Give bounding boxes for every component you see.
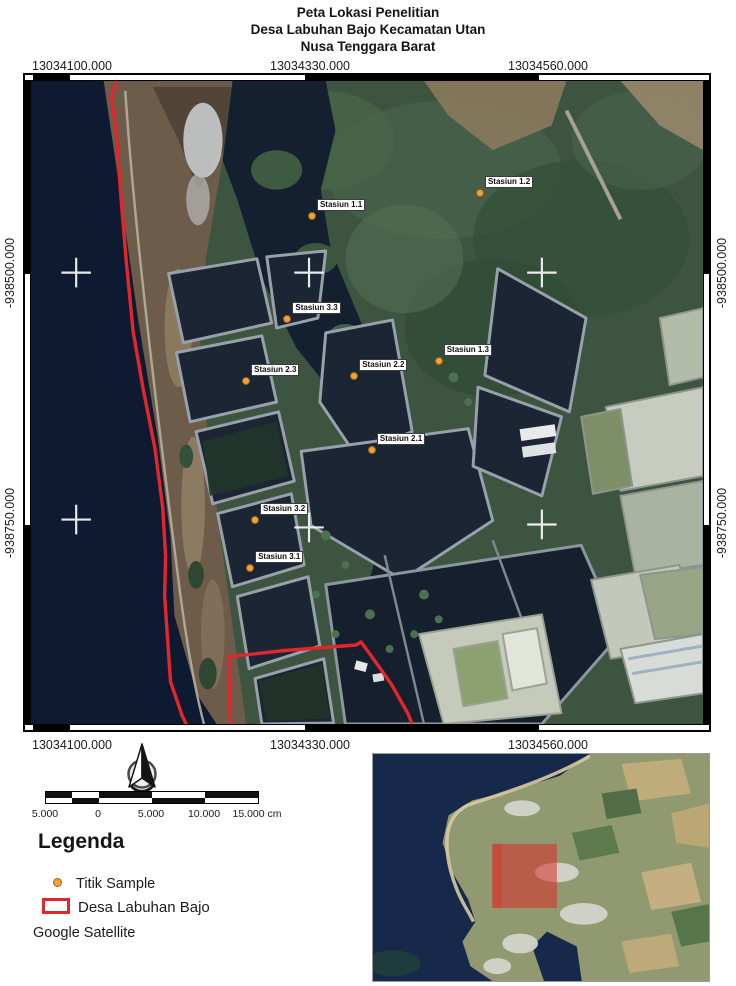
grid-x-label-top: 13034330.000 [270, 59, 350, 73]
station-label: Stasiun 1.1 [317, 199, 365, 211]
sample-point-icon [308, 212, 316, 220]
scale-bar: 5.00005.00010.00015.000 cm [45, 791, 257, 817]
title-line-2: Desa Labuhan Bajo Kecamatan Utan [0, 21, 736, 38]
sample-point-icon [476, 189, 484, 197]
station-label: Stasiun 2.2 [359, 359, 407, 371]
legend-item-desa-labuhan-bajo: Desa Labuhan Bajo [78, 899, 210, 916]
map-title: Peta Lokasi Penelitian Desa Labuhan Bajo… [0, 4, 736, 55]
map-neatline-right [703, 81, 710, 724]
legend-heading: Legenda [38, 830, 124, 854]
sample-point-icon [283, 315, 291, 323]
sample-point-icon [368, 446, 376, 454]
grid-y-label-left: -938500.000 [3, 238, 17, 308]
legend-item-google-satellite: Google Satellite [33, 925, 135, 941]
main-map-frame: Stasiun 1.1Stasiun 1.2Stasiun 1.3Stasiun… [23, 73, 711, 732]
scale-bar-tick-label: 5.000 [138, 808, 164, 820]
legend-sample-point-icon [53, 878, 62, 887]
grid-x-label-top: 13034560.000 [508, 59, 588, 73]
north-arrow-icon [118, 741, 166, 795]
sample-point-icon [242, 377, 250, 385]
inset-map [372, 753, 710, 982]
map-neatline-bottom [24, 724, 710, 731]
sample-point-icon [251, 516, 259, 524]
inset-map-art [373, 754, 709, 981]
grid-y-label-right: -938750.000 [715, 488, 729, 558]
station-label: Stasiun 1.2 [485, 176, 533, 188]
grid-x-label-bottom: 13034100.000 [32, 738, 112, 752]
grid-y-label-right: -938500.000 [715, 238, 729, 308]
station-label: Stasiun 3.2 [260, 503, 308, 515]
station-label: Stasiun 2.3 [251, 364, 299, 376]
grid-x-label-bottom: 13034560.000 [508, 738, 588, 752]
title-line-3: Nusa Tenggara Barat [0, 38, 736, 55]
scale-bar-tick-label: 5.000 [32, 808, 58, 820]
scale-bar-tick-label: 15.000 cm [232, 808, 281, 820]
grid-y-label-left: -938750.000 [3, 488, 17, 558]
scale-bar-tick-label: 0 [95, 808, 101, 820]
sample-point-icon [435, 357, 443, 365]
station-label: Stasiun 3.3 [292, 302, 340, 314]
grid-x-label-bottom: 13034330.000 [270, 738, 350, 752]
station-label: Stasiun 2.1 [377, 433, 425, 445]
scale-bar-tick-label: 10.000 [188, 808, 220, 820]
station-marker-layer: Stasiun 1.1Stasiun 1.2Stasiun 1.3Stasiun… [31, 81, 703, 724]
sample-point-icon [246, 564, 254, 572]
legend-item-titik-sample: Titik Sample [76, 876, 155, 892]
scale-bar-row-bottom [46, 798, 258, 804]
legend-village-boundary-icon [42, 898, 70, 914]
grid-x-label-top: 13034100.000 [32, 59, 112, 73]
station-label: Stasiun 3.1 [255, 551, 303, 563]
map-figure: Peta Lokasi Penelitian Desa Labuhan Bajo… [0, 0, 736, 986]
station-label: Stasiun 1.3 [444, 344, 492, 356]
scale-bar-bar [45, 791, 259, 804]
map-neatline-left [24, 81, 31, 724]
sample-point-icon [350, 372, 358, 380]
satellite-map-canvas: Stasiun 1.1Stasiun 1.2Stasiun 1.3Stasiun… [31, 81, 703, 724]
map-neatline-top [24, 74, 710, 81]
title-line-1: Peta Lokasi Penelitian [0, 4, 736, 21]
